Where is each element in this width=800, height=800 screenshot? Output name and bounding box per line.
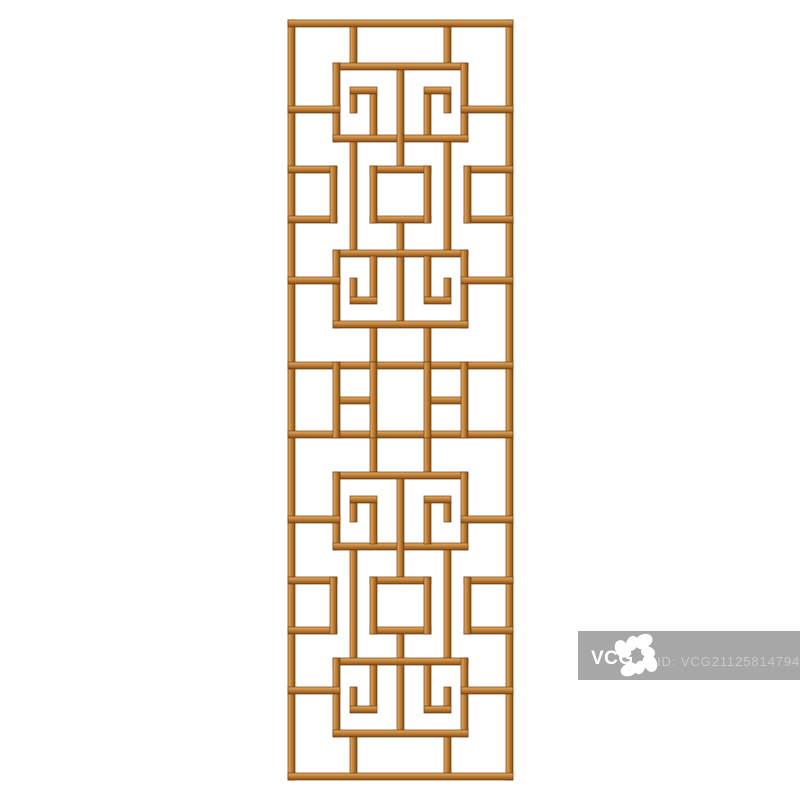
lattice-middle-band xyxy=(288,362,513,438)
lattice-top-section xyxy=(288,27,513,362)
lattice-panel-image: VCG ID: VCG211258147949 xyxy=(0,0,800,800)
stock-photo-canvas: VCG ID: VCG211258147949 xyxy=(0,0,800,800)
watermark-id-text: ID: VCG211258147949 xyxy=(657,654,800,669)
lattice-bottom-section xyxy=(288,438,513,773)
vcg-watermark: VCG ID: VCG211258147949 xyxy=(578,630,800,680)
